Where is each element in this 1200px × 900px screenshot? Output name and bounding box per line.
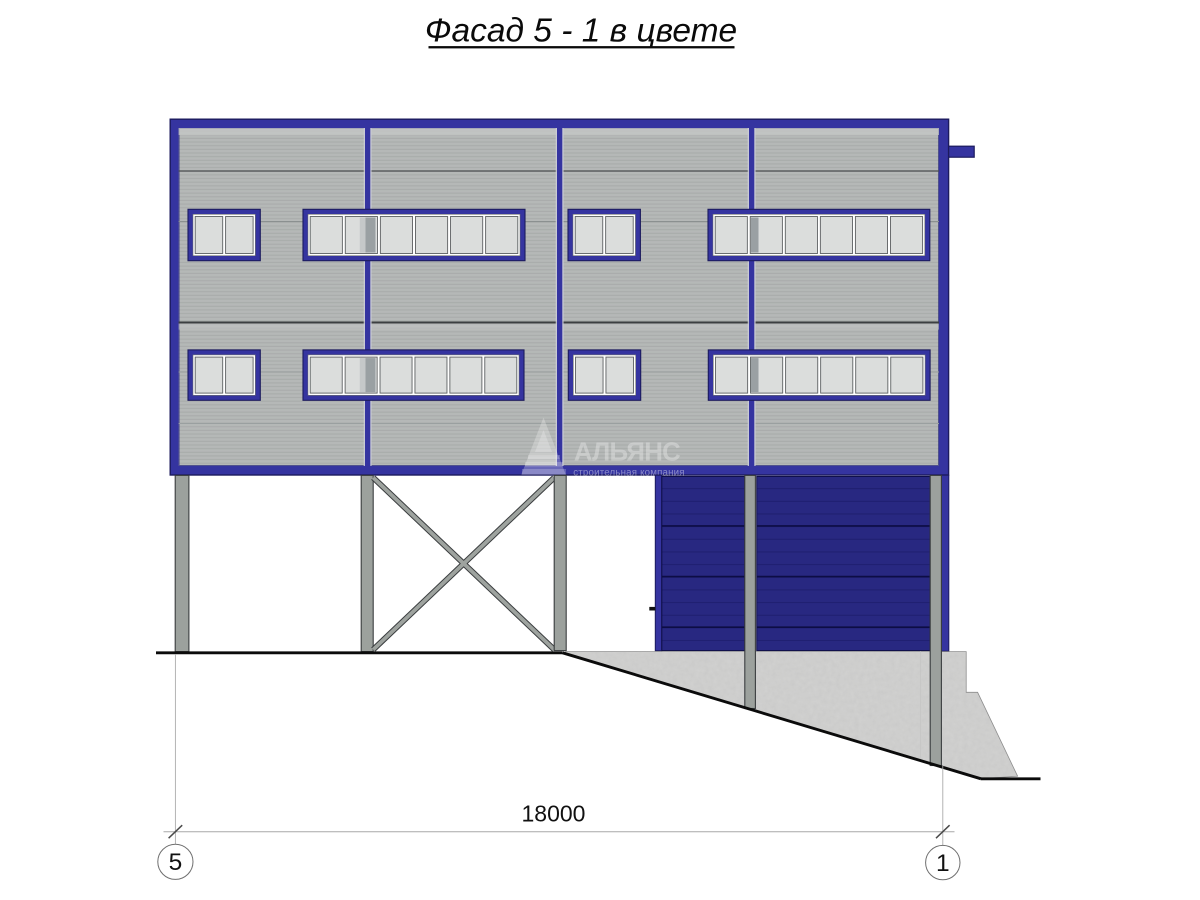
svg-text:1: 1 [936,850,950,877]
svg-text:АЛЬЯНС: АЛЬЯНС [574,439,680,467]
svg-text:5: 5 [169,849,183,876]
svg-text:Фасад 5 - 1 в цвете: Фасад 5 - 1 в цвете [425,12,737,49]
svg-text:18000: 18000 [522,801,586,827]
